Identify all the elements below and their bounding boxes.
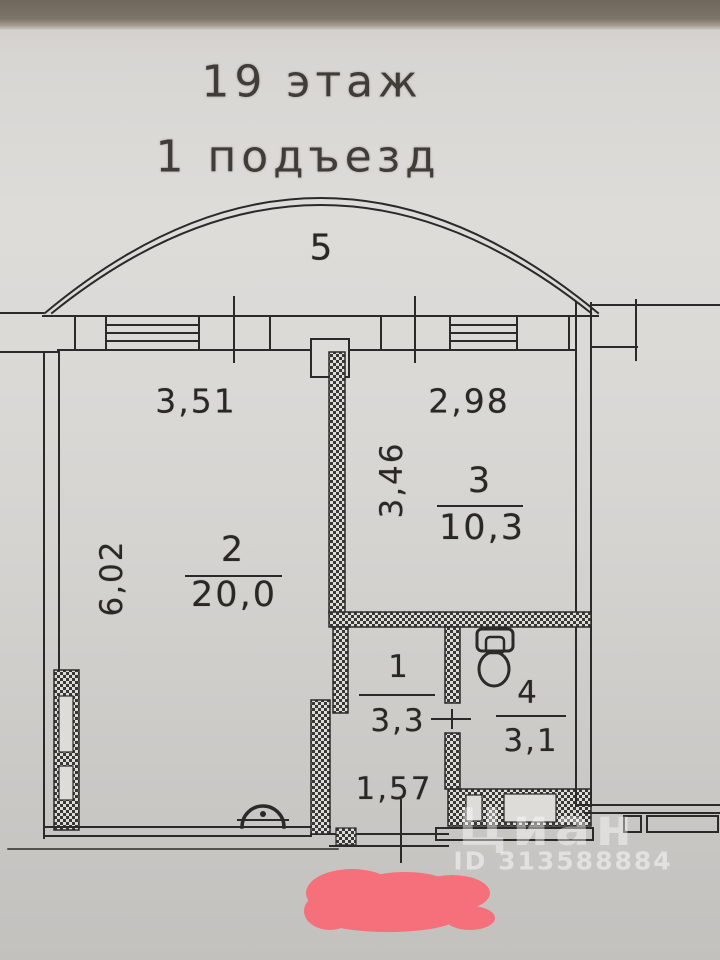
room1-number: 1 [388, 649, 410, 685]
partition-room2-hall-upper [333, 627, 348, 713]
room2-area: 20,0 [191, 575, 277, 615]
room2-number: 2 [221, 530, 245, 570]
sink-icon [238, 806, 288, 827]
dimension-hall-width: 1,57 [355, 771, 432, 807]
dimension-top-left: 3,51 [155, 382, 236, 421]
floor-plan-photo: 19 этаж 1 подъезд [0, 0, 720, 960]
room1-area: 3,3 [370, 703, 425, 739]
dimension-room3-depth: 3,46 [374, 441, 410, 518]
room3-number: 3 [468, 461, 492, 501]
room4-area: 3,1 [503, 723, 558, 759]
room3-area: 10,3 [439, 508, 525, 548]
window-glazing-left [106, 325, 199, 341]
partition-room3-hall [329, 612, 591, 627]
partition-room2-hall-lower [311, 700, 330, 834]
toilet-icon [477, 629, 513, 686]
entrance-threshold [311, 828, 448, 846]
redaction-scribble [304, 869, 495, 932]
partition-hall-room4-lower [445, 733, 460, 789]
window-glazing-right [450, 325, 517, 341]
wall-left [0, 313, 79, 838]
dimension-room2-depth: 6,02 [94, 539, 130, 616]
wall-right [576, 300, 720, 832]
partition-walls [311, 352, 591, 834]
watermark-id: ID 313588884 [453, 847, 672, 876]
partition-room2-room3 [329, 352, 345, 614]
balcony-number: 5 [310, 228, 335, 269]
room4-number: 4 [517, 675, 539, 711]
window-wall-band [43, 297, 598, 377]
partition-hall-room4-upper [445, 627, 460, 703]
dimension-top-right: 2,98 [428, 382, 509, 421]
